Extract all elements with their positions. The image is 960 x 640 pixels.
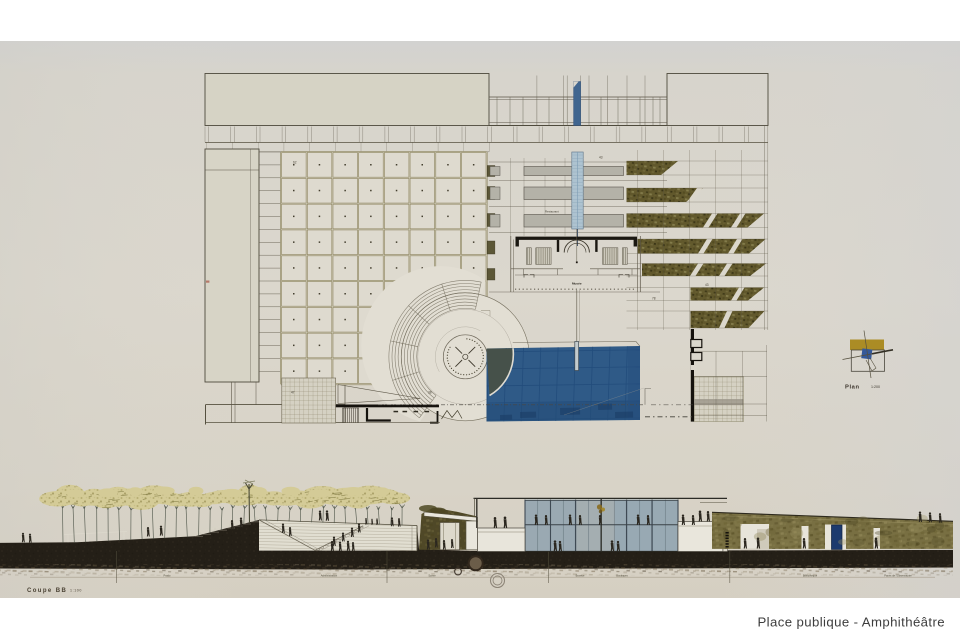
svg-text:62: 62 [293,161,297,165]
svg-text:47: 47 [291,391,295,395]
svg-text:Parvis de l'Observatoire: Parvis de l'Observatoire [884,573,912,577]
svg-text:Musée: Musée [572,281,582,285]
svg-text:Buvette: Buvette [576,573,585,577]
svg-text:Place publique - Amphithéâtre: Place publique - Amphithéâtre [757,615,945,630]
svg-text:Bibliothèque: Bibliothèque [803,573,818,577]
svg-text:1:100: 1:100 [70,589,82,593]
svg-text:Administration: Administration [321,573,338,577]
svg-text:1:200: 1:200 [871,385,880,389]
svg-text:78: 78 [652,297,656,301]
svg-text:38: 38 [428,391,432,395]
svg-text:Scène: Scène [428,573,436,577]
svg-text:Coupe BB: Coupe BB [27,588,67,594]
svg-text:43: 43 [705,283,709,287]
svg-text:Plan: Plan [845,385,860,391]
svg-text:Boutiques: Boutiques [616,573,628,577]
svg-text:Prado: Prado [164,573,171,577]
svg-text:Restaurant: Restaurant [545,210,559,214]
svg-text:43: 43 [599,156,603,160]
